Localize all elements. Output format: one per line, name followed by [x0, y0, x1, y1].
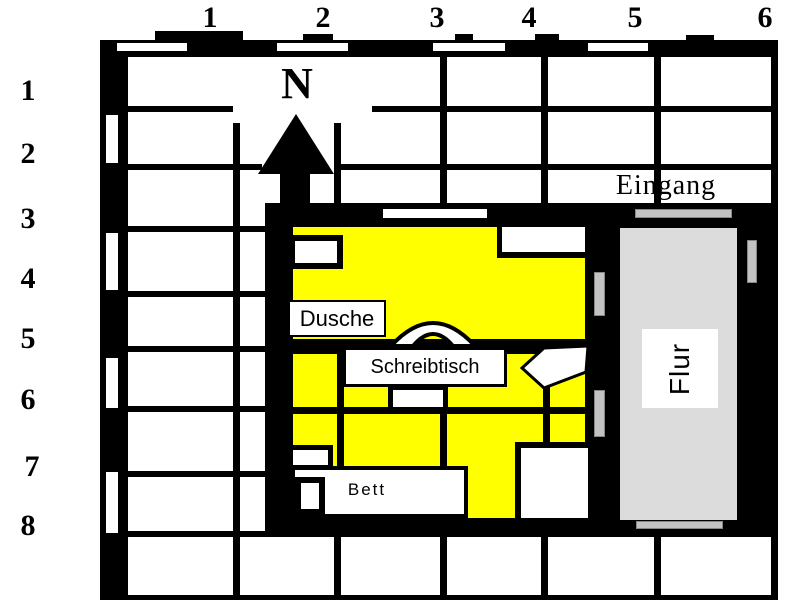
shower-label: Dusche: [288, 300, 386, 337]
window-slot: [383, 209, 487, 218]
column-label-1: 1: [185, 0, 235, 36]
column-label-5: 5: [610, 0, 660, 36]
grid-vline: [233, 123, 240, 600]
wall-tab: [686, 35, 714, 41]
compass-north-label: N: [267, 62, 327, 106]
corridor-label: Flur: [664, 342, 696, 394]
door-swing-arc-icon: [385, 296, 481, 348]
door-marker: [636, 521, 723, 529]
grid-hline: [100, 595, 778, 600]
entrance-label: Eingang: [595, 170, 737, 202]
bed-label: Bett: [332, 480, 402, 500]
wardrobe: [515, 442, 588, 518]
grid-hline: [128, 106, 233, 112]
corridor-label-box: Flur: [642, 329, 718, 408]
window-slot: [106, 472, 118, 533]
window-slot: [106, 115, 118, 163]
row-label-4: 4: [6, 261, 50, 297]
door-marker: [747, 240, 757, 283]
door-marker: [594, 272, 605, 316]
row-label-2: 2: [6, 136, 50, 172]
shelf-fixture: [497, 227, 585, 258]
desk-chair: [388, 385, 448, 412]
window-slot: [433, 43, 505, 51]
column-label-4: 4: [504, 0, 554, 36]
pillow: [295, 477, 325, 515]
outer-wall-right: [771, 43, 778, 600]
door-swing-fan-icon: [516, 338, 590, 392]
floor-plan-map: 1 2 3 4 5 6 1 2 3 4 5 6 7 8 N Eingang Du…: [0, 0, 800, 600]
window-slot: [117, 43, 187, 51]
north-arrow-icon: [252, 110, 340, 206]
column-label-2: 2: [298, 0, 348, 36]
row-label-3: 3: [6, 201, 50, 237]
row-label-7: 7: [10, 449, 54, 485]
window-slot: [588, 43, 648, 51]
row-label-5: 5: [6, 321, 50, 357]
window-slot: [277, 43, 348, 51]
grid-hline: [372, 106, 771, 112]
grid-hline: [128, 164, 262, 170]
door-marker: [594, 390, 605, 437]
entrance-door-marker: [635, 209, 732, 218]
desk-label: Schreibtisch: [343, 347, 507, 387]
column-label-6: 6: [740, 0, 790, 36]
row-label-1: 1: [6, 73, 50, 109]
row-label-6: 6: [6, 382, 50, 418]
sink-fixture: [289, 235, 343, 269]
column-label-3: 3: [412, 0, 462, 36]
row-label-8: 8: [6, 508, 50, 544]
window-slot: [106, 358, 118, 408]
window-slot: [106, 233, 118, 290]
